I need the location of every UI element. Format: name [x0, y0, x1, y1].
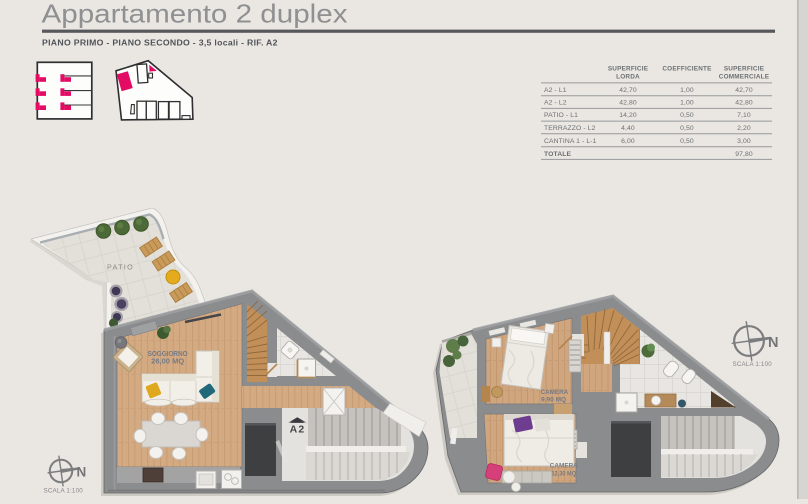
- svg-text:Appartamento 2 duplex: Appartamento 2 duplex: [42, 0, 348, 29]
- svg-text:14,20: 14,20: [619, 112, 637, 119]
- svg-text:N: N: [77, 465, 87, 480]
- svg-text:A2: A2: [290, 424, 306, 436]
- svg-text:4,40: 4,40: [621, 125, 635, 132]
- svg-text:1,00: 1,00: [680, 87, 694, 94]
- svg-text:42,80: 42,80: [735, 100, 753, 107]
- svg-text:CANTINA 1 - L-1: CANTINA 1 - L-1: [544, 138, 597, 145]
- svg-text:9,90 MQ: 9,90 MQ: [541, 397, 566, 404]
- svg-text:SCALA 1:100: SCALA 1:100: [733, 361, 773, 368]
- svg-text:LORDA: LORDA: [616, 74, 640, 81]
- svg-text:1,00: 1,00: [680, 100, 694, 107]
- svg-text:42,80: 42,80: [619, 100, 637, 107]
- svg-text:A2 - L2: A2 - L2: [544, 100, 567, 107]
- svg-text:0,50: 0,50: [680, 112, 694, 119]
- svg-text:CAMERA: CAMERA: [541, 389, 569, 396]
- svg-text:0,50: 0,50: [680, 125, 694, 132]
- svg-text:12,30 MQ: 12,30 MQ: [552, 471, 577, 478]
- svg-text:42,70: 42,70: [619, 87, 637, 94]
- svg-text:SUPERFICIE: SUPERFICIE: [608, 66, 649, 73]
- svg-text:42,70: 42,70: [735, 87, 753, 94]
- svg-text:2,20: 2,20: [737, 125, 751, 132]
- svg-text:N: N: [768, 335, 778, 351]
- svg-text:6,00: 6,00: [621, 138, 635, 145]
- svg-text:SCALA 1:100: SCALA 1:100: [44, 488, 84, 495]
- svg-text:A2 - L1: A2 - L1: [544, 87, 567, 94]
- svg-text:3,00: 3,00: [737, 138, 751, 145]
- svg-text:COMMERCIALE: COMMERCIALE: [719, 74, 770, 81]
- svg-text:SOGGIORNO: SOGGIORNO: [148, 351, 189, 358]
- svg-text:CAMERA: CAMERA: [550, 462, 578, 469]
- svg-text:PIANO PRIMO - PIANO SECONDO -: PIANO PRIMO - PIANO SECONDO - 3,5 locali…: [42, 38, 278, 48]
- svg-text:COEFFICIENTE: COEFFICIENTE: [662, 66, 712, 73]
- svg-text:SUPERFICIE: SUPERFICIE: [724, 66, 765, 73]
- svg-text:TERRAZZO - L2: TERRAZZO - L2: [544, 125, 596, 132]
- svg-text:0,50: 0,50: [680, 138, 694, 145]
- svg-text:TOTALE: TOTALE: [544, 151, 572, 158]
- svg-text:97,80: 97,80: [735, 151, 753, 158]
- svg-text:PATIO - L1: PATIO - L1: [544, 112, 578, 119]
- svg-text:7,10: 7,10: [737, 112, 751, 119]
- svg-text:PATIO: PATIO: [107, 263, 134, 272]
- svg-text:26,00 MQ: 26,00 MQ: [151, 359, 185, 366]
